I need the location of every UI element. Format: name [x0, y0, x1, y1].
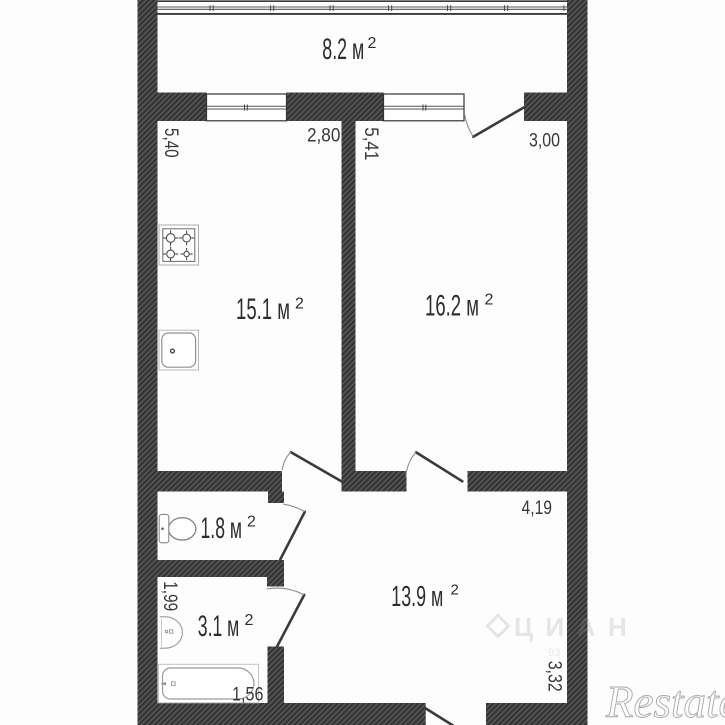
svg-text:13.9 м: 13.9 м — [391, 581, 443, 613]
svg-text:3,32: 3,32 — [543, 661, 565, 692]
svg-text:2,80: 2,80 — [307, 124, 340, 146]
svg-text:2: 2 — [295, 295, 304, 312]
svg-text:ЦИАН: ЦИАН — [514, 612, 639, 642]
svg-text:1,56: 1,56 — [232, 683, 264, 705]
svg-text:1.8 м: 1.8 м — [201, 512, 243, 545]
svg-text:2: 2 — [247, 514, 256, 531]
svg-text:5,40: 5,40 — [160, 128, 182, 158]
svg-text:16.2 м: 16.2 м — [425, 290, 479, 323]
svg-text:8.2 м: 8.2 м — [322, 33, 364, 66]
svg-text:3,00: 3,00 — [529, 130, 560, 152]
svg-text:Restate: Restate — [605, 677, 725, 725]
svg-text:93: 93 — [548, 647, 560, 659]
svg-text:4,19: 4,19 — [522, 497, 553, 519]
svg-text:2: 2 — [485, 291, 494, 308]
svg-text:3.1 м: 3.1 м — [198, 610, 240, 643]
svg-text:5,41: 5,41 — [360, 127, 382, 160]
svg-text:15.1 м: 15.1 м — [236, 293, 290, 326]
svg-text:2: 2 — [245, 612, 254, 629]
svg-text:1,99: 1,99 — [159, 581, 181, 611]
svg-text:2: 2 — [368, 35, 377, 52]
svg-text:2: 2 — [451, 582, 459, 599]
